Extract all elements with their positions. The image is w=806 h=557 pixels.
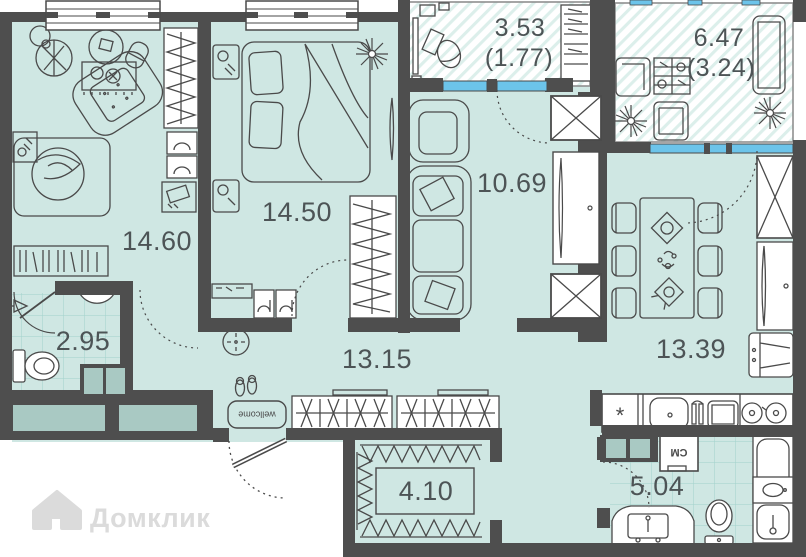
area-label-hallway: 13.15	[342, 344, 412, 374]
floor-plan: 14.60 14.50 3.53 (1.77) 6.47 (3.24) 10.6…	[0, 0, 806, 557]
built-in-cabinet-icon	[553, 152, 599, 264]
vanity-sink-icon	[612, 506, 694, 543]
closet-island: 4.10	[376, 468, 474, 514]
duct-frame	[80, 364, 130, 398]
balcony-door-glass	[497, 81, 547, 91]
area-label-balcony-small: 3.53	[495, 14, 546, 42]
vent-shaft-icon	[551, 96, 601, 140]
area-label-bathroom-main: 5.04	[630, 471, 685, 501]
window-mullion	[704, 143, 710, 154]
hall-wardrobe-icon	[397, 396, 499, 430]
toilet-icon	[705, 500, 733, 544]
area-label-balcony-small-reduced: (1.77)	[485, 44, 553, 72]
window-mullion	[726, 143, 732, 154]
wardrobe-bedroom-icon	[350, 196, 396, 318]
area-label-living: 14.60	[122, 226, 192, 256]
window	[246, 1, 358, 30]
bathtub-icon	[753, 435, 793, 543]
area-label-kitchen: 13.39	[656, 334, 726, 364]
area-label-bathroom-guest: 2.95	[56, 326, 111, 356]
floor-plan-drawing: 14.60 14.50 3.53 (1.77) 6.47 (3.24) 10.6…	[0, 0, 806, 557]
watermark: Домклик	[34, 492, 210, 533]
area-label-lounge: 10.69	[477, 168, 547, 198]
wardrobe-living-icon	[164, 28, 198, 128]
area-label-balcony-large-reduced: (3.24)	[687, 54, 755, 82]
shelf-rack-icon	[561, 5, 591, 81]
balcony-door-glass	[443, 81, 487, 91]
kitchen-symbol: *	[616, 403, 625, 428]
washer-label-group: СМ	[671, 446, 688, 458]
appliance-icon	[749, 333, 793, 377]
shaft-boxes	[551, 96, 601, 318]
watermark-house-icon	[34, 492, 80, 528]
area-label-balcony-large: 6.47	[694, 24, 745, 52]
fridge-icon	[757, 242, 793, 330]
balcony-door-glass	[650, 144, 793, 153]
area-label-bedroom: 14.50	[262, 197, 332, 227]
area-label-closet: 4.10	[399, 476, 454, 506]
window	[46, 1, 160, 30]
washer-label: СМ	[671, 446, 688, 458]
hall-wardrobe-icon	[292, 396, 392, 430]
watermark-brand: Домклик	[90, 503, 210, 533]
doormat: wellcome	[228, 401, 286, 428]
doormat-label: wellcome	[238, 410, 277, 420]
tall-cabinet-icon	[757, 156, 793, 238]
entrance-door	[229, 440, 286, 498]
vent-shaft-icon	[551, 274, 601, 318]
toilet-icon	[13, 350, 59, 382]
duct-frame	[600, 435, 658, 462]
